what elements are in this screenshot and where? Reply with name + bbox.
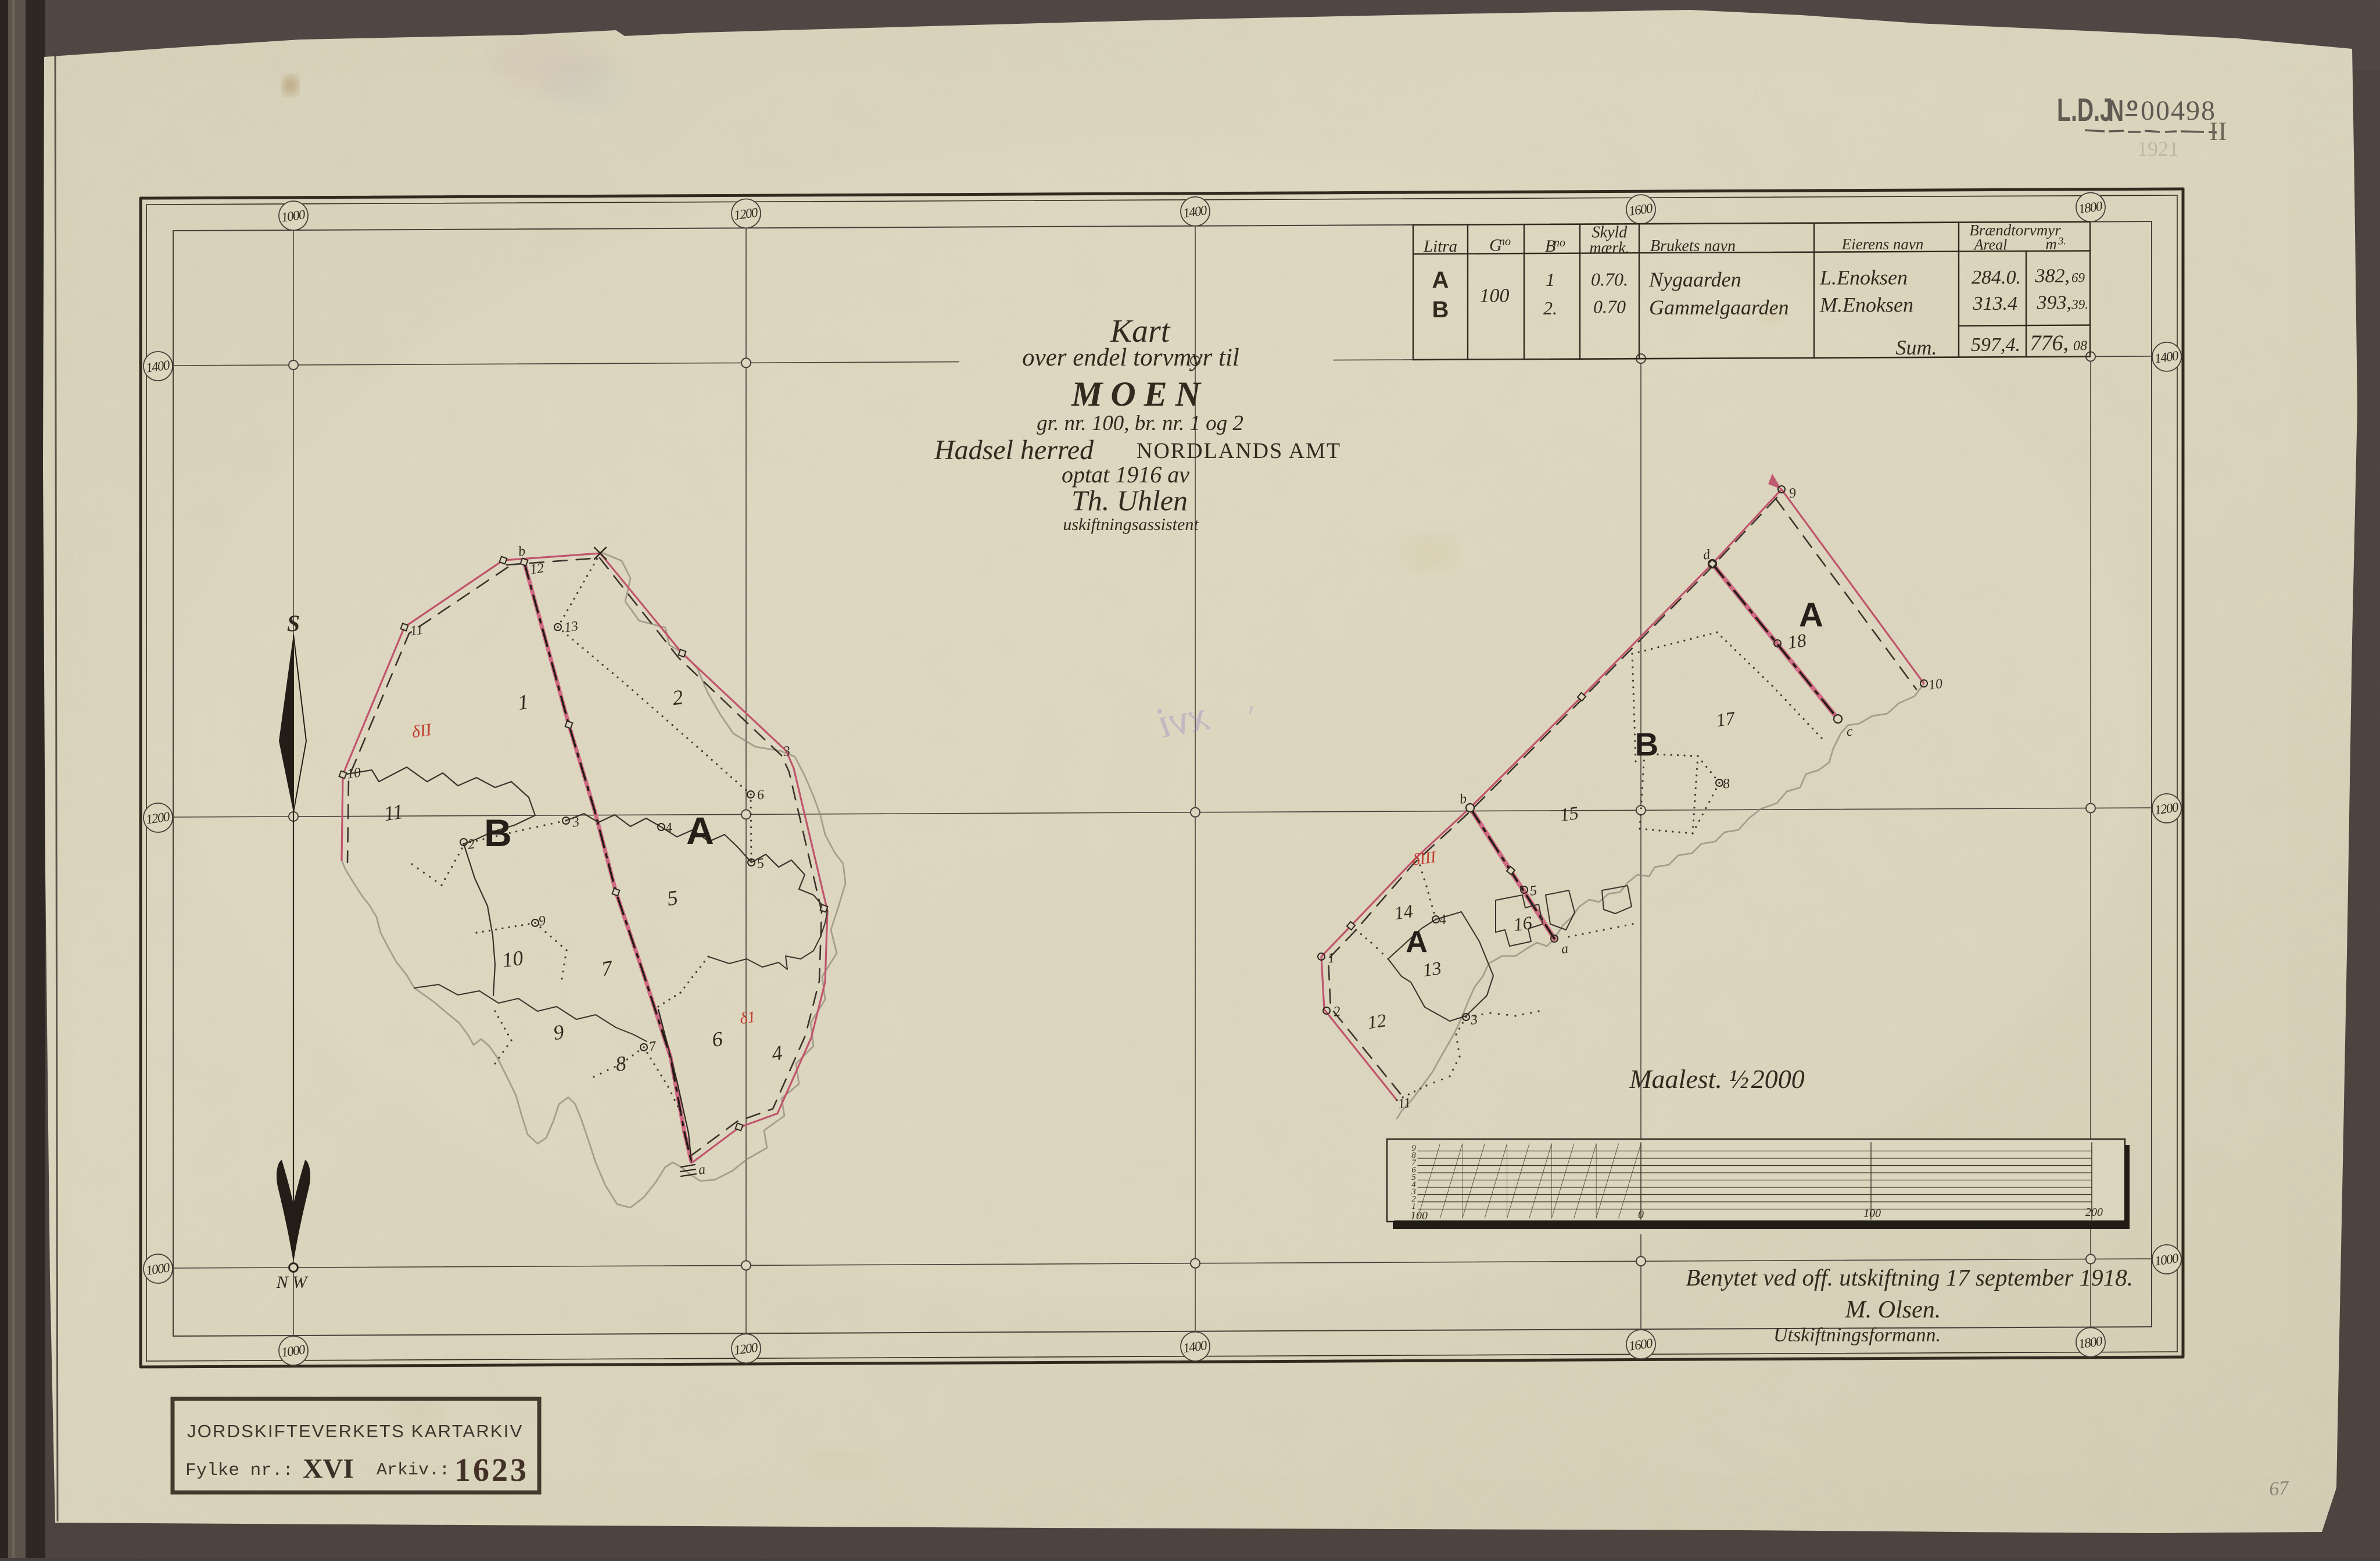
svg-text:382,: 382, [2035,266,2070,287]
svg-text:′: ′ [1245,699,1253,737]
svg-text:313.4: 313.4 [1973,293,2018,314]
svg-text:Fylke nr.:: Fylke nr.: [185,1460,293,1481]
svg-text:A: A [1406,925,1428,959]
svg-text:10: 10 [1927,676,1943,693]
svg-text:Areal: Areal [1973,236,2008,253]
svg-text:Maalest. ½ 2000: Maalest. ½ 2000 [1629,1064,1805,1094]
svg-text:0.70: 0.70 [1593,296,1626,317]
svg-text:L.D.J: L.D.J [2057,92,2113,128]
svg-text:100: 100 [1410,1209,1428,1222]
svg-text:597,4.: 597,4. [1971,334,2020,356]
svg-text:11: 11 [382,800,405,825]
svg-text:Gammelgaarden: Gammelgaarden [1649,296,1789,319]
svg-text:δIII: δIII [1411,848,1438,869]
svg-text:14: 14 [1393,900,1414,923]
svg-text:Arkiv.:: Arkiv.: [377,1460,450,1480]
svg-text:0: 0 [1638,1208,1644,1221]
svg-text:0.70.: 0.70. [1591,268,1628,289]
svg-text:A: A [1432,267,1449,293]
svg-text:NORDLANDS AMT: NORDLANDS AMT [1137,439,1341,463]
svg-text:A: A [1799,596,1823,634]
svg-text:N: N [2108,94,2124,128]
svg-text:JORDSKIFTEVERKETS KARTARKIV: JORDSKIFTEVERKETS KARTARKIV [187,1421,523,1441]
svg-text:69: 69 [2071,271,2085,285]
svg-text:10: 10 [346,765,361,782]
svg-text:13: 13 [563,619,579,636]
svg-text:15: 15 [1558,802,1580,825]
svg-text:393,: 393, [2037,292,2072,314]
svg-text:00498: 00498 [2141,95,2216,126]
svg-text:over endel torvmyr til: over endel torvmyr til [1022,344,1239,371]
svg-text:11: 11 [1397,1095,1412,1112]
svg-text:100: 100 [1863,1207,1881,1220]
svg-text:Utskiftningsformann.: Utskiftningsformann. [1773,1324,1941,1346]
svg-text:o: o [2127,94,2138,114]
svg-text:MOEN: MOEN [1071,375,1209,413]
svg-text:11: 11 [409,622,424,639]
svg-text:10: 10 [501,946,525,972]
svg-text:δII: δII [411,720,434,742]
svg-text:Nygaarden: Nygaarden [1648,268,1741,291]
svg-text:no: no [1499,235,1511,248]
svg-text:Brukets navn: Brukets navn [1650,237,1736,255]
svg-text:13: 13 [1421,957,1443,980]
svg-text:200: 200 [2085,1206,2103,1219]
svg-text:Sum.: Sum. [1896,336,1937,359]
svg-text:100: 100 [1480,285,1510,306]
svg-text:2.: 2. [1543,298,1557,318]
svg-text:L.Enoksen: L.Enoksen [1819,266,1908,289]
svg-text:39.: 39. [2071,298,2088,312]
svg-text:B: B [1432,297,1449,323]
svg-text:δ1: δ1 [739,1008,757,1027]
svg-text:1921: 1921 [2137,137,2179,160]
svg-text:uskiftningsassistent: uskiftningsassistent [1063,515,1199,534]
svg-text:3.: 3. [2058,235,2066,247]
svg-text:1623: 1623 [454,1452,529,1488]
svg-text:12: 12 [529,561,544,578]
svg-text:776,: 776, [2030,331,2069,356]
svg-text:XVI: XVI [303,1453,354,1484]
svg-text:Litra: Litra [1423,237,1457,256]
svg-text:mærk.: mærk. [1589,239,1629,257]
svg-text:N W: N W [276,1273,309,1292]
svg-text:A: A [686,809,714,852]
svg-text:xvi: xvi [1154,692,1212,747]
svg-text:M.Enoksen: M.Enoksen [1819,293,1913,317]
svg-text:16: 16 [1512,912,1533,935]
svg-text:B: B [1635,726,1658,762]
svg-text:Benytet ved off. utskiftning 1: Benytet ved off. utskiftning 17 septembe… [1686,1264,2133,1291]
svg-text:II: II [2209,116,2227,146]
svg-text:Th. Uhlen: Th. Uhlen [1071,484,1188,517]
svg-text:1: 1 [1546,269,1555,290]
svg-text:284.0.: 284.0. [1972,267,2021,288]
svg-text:12: 12 [1366,1009,1388,1033]
svg-text:M. Olsen.: M. Olsen. [1845,1297,1941,1323]
svg-text:67: 67 [2268,1477,2291,1500]
svg-text:Eierens navn: Eierens navn [1841,235,1924,253]
svg-text:gr. nr. 100, br. nr. 1 og 2: gr. nr. 100, br. nr. 1 og 2 [1037,411,1243,435]
svg-text:no: no [1554,237,1565,249]
svg-text:S: S [287,610,300,636]
svg-text:m: m [2045,235,2057,253]
svg-text:B: B [484,811,512,854]
svg-text:08: 08 [2073,339,2087,354]
